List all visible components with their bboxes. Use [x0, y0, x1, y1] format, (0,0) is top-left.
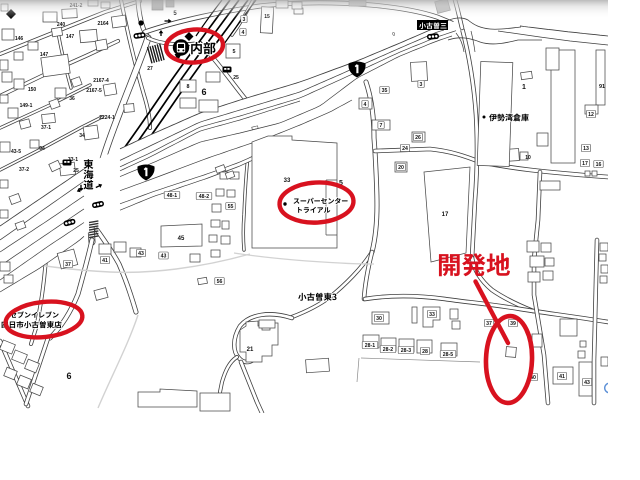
svg-text:26: 26	[415, 135, 421, 141]
svg-text:35: 35	[382, 88, 388, 94]
svg-text:30: 30	[376, 316, 382, 322]
svg-text:8: 8	[187, 84, 190, 90]
svg-text:28: 28	[422, 349, 428, 355]
svg-text:1: 1	[522, 84, 526, 91]
svg-text:34: 34	[79, 133, 85, 139]
svg-text:48-2: 48-2	[199, 194, 209, 200]
svg-text:7: 7	[380, 123, 383, 129]
svg-text:2167-5: 2167-5	[86, 88, 102, 94]
svg-text:36: 36	[69, 96, 75, 102]
svg-text:149-1: 149-1	[20, 103, 33, 109]
svg-text:12: 12	[588, 112, 594, 118]
svg-text:25: 25	[73, 168, 79, 174]
svg-text:91: 91	[599, 84, 605, 90]
svg-text:2164: 2164	[97, 21, 108, 27]
svg-text:56: 56	[217, 279, 223, 285]
svg-text:10: 10	[525, 155, 531, 161]
svg-text:20: 20	[398, 165, 404, 171]
svg-text:37: 37	[65, 262, 71, 268]
svg-text:146: 146	[15, 36, 24, 42]
svg-text:37: 37	[486, 321, 492, 327]
svg-text:2224-1: 2224-1	[99, 115, 115, 121]
svg-text:28-3: 28-3	[401, 348, 411, 354]
svg-text:37-2: 37-2	[19, 167, 29, 173]
svg-text:4: 4	[242, 30, 245, 36]
svg-text:33: 33	[284, 178, 291, 184]
svg-text:21: 21	[247, 347, 254, 353]
svg-text:28-5: 28-5	[443, 352, 453, 358]
svg-text:28-1: 28-1	[365, 343, 375, 349]
svg-text:6: 6	[66, 371, 71, 381]
svg-text:16: 16	[596, 162, 602, 168]
svg-text:33: 33	[429, 312, 435, 318]
svg-text:13: 13	[583, 146, 589, 152]
svg-text:4: 4	[364, 102, 367, 108]
svg-text:5: 5	[233, 49, 236, 55]
svg-text:41: 41	[102, 258, 108, 264]
svg-text:37-1: 37-1	[41, 125, 51, 131]
svg-text:27: 27	[147, 66, 153, 72]
svg-text:2167-4: 2167-4	[93, 78, 109, 84]
svg-text:45: 45	[178, 236, 185, 242]
svg-text:17: 17	[442, 212, 449, 218]
svg-text:43: 43	[584, 380, 590, 386]
svg-text:43: 43	[161, 253, 167, 259]
svg-text:39: 39	[510, 321, 516, 327]
svg-text:94: 94	[39, 146, 45, 152]
svg-text:28-2: 28-2	[383, 347, 393, 353]
svg-text:6: 6	[201, 87, 206, 97]
svg-text:43-5: 43-5	[11, 149, 21, 155]
svg-text:17: 17	[582, 161, 588, 167]
svg-text:150: 150	[28, 87, 37, 93]
svg-text:24: 24	[402, 146, 408, 152]
svg-text:55: 55	[228, 204, 234, 210]
svg-text:48-1: 48-1	[167, 193, 177, 199]
svg-text:147: 147	[66, 34, 75, 40]
svg-text:3: 3	[420, 82, 423, 88]
svg-text:43: 43	[138, 251, 144, 257]
svg-text:25: 25	[233, 75, 239, 81]
svg-text:147: 147	[40, 52, 49, 58]
svg-text:41: 41	[559, 374, 565, 380]
